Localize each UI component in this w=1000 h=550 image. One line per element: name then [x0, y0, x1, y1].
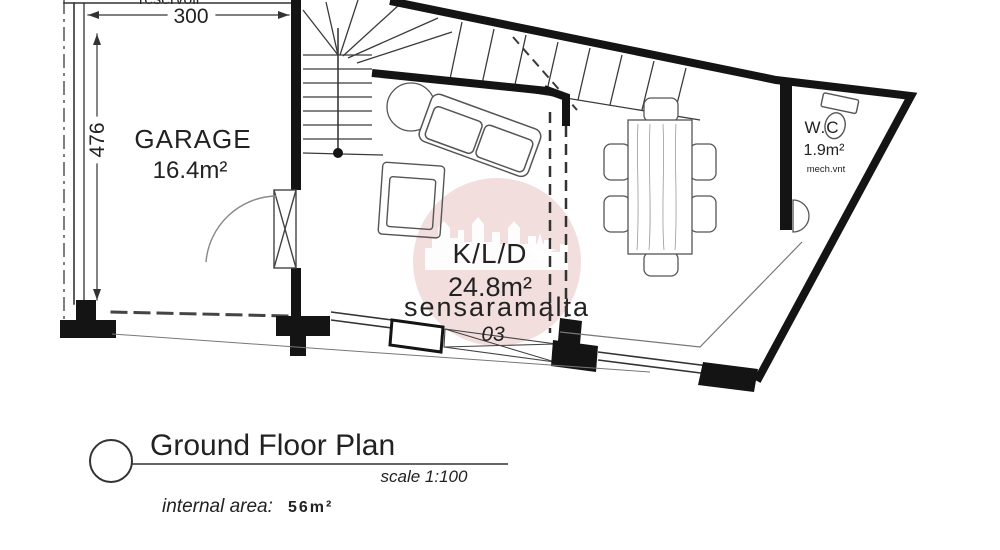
kld-area: 24.8m²: [448, 272, 532, 302]
floor-plan-page: sensaramalta reservoir 300 476 GARAGE 16…: [0, 0, 1000, 550]
chair-icon: [604, 144, 630, 180]
corner-pier: [698, 362, 758, 392]
internal-door: [206, 190, 296, 268]
legend-circle-icon: [90, 440, 132, 482]
scale-label: scale 1:100: [381, 467, 468, 486]
garage-door-dashed: [112, 312, 288, 316]
interior-step-line: [560, 242, 802, 347]
chair-icon: [604, 196, 630, 232]
window: [331, 312, 392, 320]
internal-area-label: internal area:: [162, 496, 273, 517]
wc-wall: [780, 84, 792, 230]
garage-room: 300 476 GARAGE 16.4m²: [60, 3, 299, 338]
dimension-height: [93, 34, 101, 300]
chair-icon: [690, 196, 716, 232]
floor-plan-drawing: sensaramalta reservoir 300 476 GARAGE 16…: [0, 0, 1000, 550]
dimension-height-value: 476: [86, 122, 109, 157]
wc-vent-label: mech.vnt: [807, 164, 846, 175]
pier: [390, 320, 443, 352]
kld-label: K/L/D: [452, 238, 527, 269]
plan-title: Ground Floor Plan: [150, 429, 395, 462]
sink-icon: [793, 200, 809, 232]
dining-set-icon: [604, 98, 716, 276]
garage-label: GARAGE: [134, 124, 251, 154]
bottom-wall: [112, 312, 758, 392]
door-swing-arc: [206, 196, 276, 262]
dimension-width-value: 300: [173, 5, 208, 28]
star-icon: [523, 233, 557, 267]
wc-area: 1.9m²: [804, 142, 846, 159]
garage-area: 16.4m²: [153, 157, 228, 184]
chair-icon: [644, 252, 678, 276]
wc-label: W.C: [804, 118, 839, 137]
pier: [60, 320, 116, 338]
kld-room-number: 03: [481, 323, 505, 346]
legend: Ground Floor Plan scale 1:100 internal a…: [90, 429, 508, 517]
newel-post: [333, 148, 343, 158]
chair-icon: [690, 144, 716, 180]
pier: [551, 340, 598, 372]
internal-area-value: 56m²: [288, 499, 333, 516]
chair-icon: [644, 98, 678, 122]
